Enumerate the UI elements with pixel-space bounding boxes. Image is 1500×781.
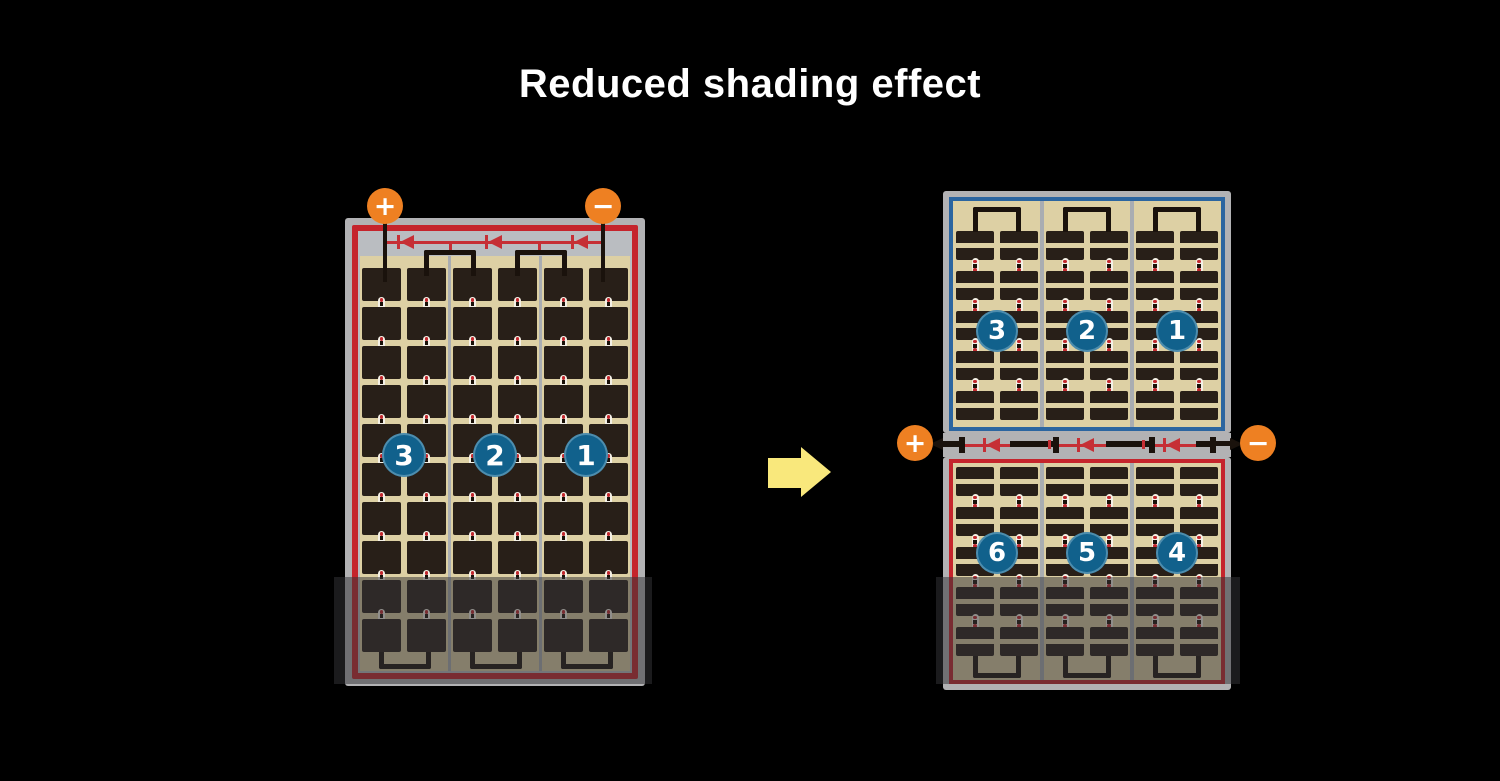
transition-arrow-icon	[801, 447, 831, 497]
solar-cell	[1136, 231, 1174, 260]
solar-cell	[956, 507, 994, 536]
diode-tap	[1142, 440, 1145, 449]
half-cut-module-top: 3 2 1	[943, 191, 1231, 433]
transition-arrow-icon	[768, 458, 801, 488]
shading-overlay	[936, 577, 1240, 684]
junction-wire	[1106, 441, 1152, 447]
bypass-diode-icon	[574, 235, 588, 249]
solar-cell	[1180, 391, 1218, 420]
positive-terminal: +	[367, 188, 403, 224]
diagram-title: Reduced shading effect	[0, 62, 1500, 107]
solar-cell	[1046, 467, 1084, 496]
string-top-connector	[1153, 207, 1201, 232]
terminal-lead	[940, 441, 960, 446]
string-top-connector	[1063, 207, 1111, 232]
solar-cell	[1000, 507, 1038, 536]
bypass-diode-icon	[1166, 438, 1180, 452]
shading-overlay	[334, 577, 652, 684]
diode-tap	[1048, 440, 1051, 449]
solar-cell	[1090, 467, 1128, 496]
solar-cell	[1046, 271, 1084, 300]
solar-cell	[1136, 391, 1174, 420]
solar-cell	[1000, 391, 1038, 420]
string-number-badge: 2	[1066, 310, 1108, 352]
bypass-diode-icon	[986, 438, 1000, 452]
solar-cell	[1180, 351, 1218, 380]
solar-cell	[1180, 231, 1218, 260]
solar-cell	[1000, 467, 1038, 496]
solar-cell	[1046, 231, 1084, 260]
junction-tap	[1149, 437, 1155, 453]
solar-cell	[1090, 351, 1128, 380]
string-number-badge: 1	[1156, 310, 1198, 352]
diagram-canvas: Reduced shading effect 3 2 1	[0, 0, 1500, 781]
solar-cell	[956, 231, 994, 260]
bypass-diode-icon	[1080, 438, 1094, 452]
solar-cell	[1046, 351, 1084, 380]
solar-cell	[956, 467, 994, 496]
solar-cell	[1136, 271, 1174, 300]
string-number-badge: 2	[473, 433, 517, 477]
string-number-badge: 3	[976, 310, 1018, 352]
solar-cell	[1136, 507, 1174, 536]
solar-cell	[1180, 507, 1218, 536]
solar-cell	[1180, 271, 1218, 300]
junction-tap	[1053, 437, 1059, 453]
solar-cell	[956, 391, 994, 420]
bypass-diode-icon	[488, 235, 502, 249]
module-blue-border: 3 2 1	[949, 197, 1225, 431]
solar-cell	[1046, 391, 1084, 420]
solar-cell	[1090, 391, 1128, 420]
cell-string: 3	[954, 201, 1040, 423]
solar-cell	[956, 351, 994, 380]
string-number-badge: 3	[382, 433, 426, 477]
string-number-badge: 5	[1066, 532, 1108, 574]
solar-cell	[1090, 231, 1128, 260]
string-top-bridge	[424, 250, 476, 276]
negative-terminal: −	[585, 188, 621, 224]
bypass-diode-icon	[400, 235, 414, 249]
solar-cell	[1136, 351, 1174, 380]
string-top-bridge	[515, 250, 567, 276]
negative-terminal: −	[1240, 425, 1276, 461]
string-top-connector	[973, 207, 1021, 232]
string-number-badge: 4	[1156, 532, 1198, 574]
solar-cell	[1046, 507, 1084, 536]
solar-cell	[1180, 467, 1218, 496]
string-number-badge: 1	[564, 433, 608, 477]
positive-terminal: +	[897, 425, 933, 461]
solar-cell	[1000, 231, 1038, 260]
solar-cell	[956, 271, 994, 300]
solar-cell	[1000, 351, 1038, 380]
cell-string: 1	[1134, 201, 1220, 423]
string-number-badge: 6	[976, 532, 1018, 574]
solar-cell	[1136, 467, 1174, 496]
cell-string: 2	[1044, 201, 1130, 423]
solar-cell	[1090, 271, 1128, 300]
solar-cell	[1000, 271, 1038, 300]
solar-cell	[1090, 507, 1128, 536]
